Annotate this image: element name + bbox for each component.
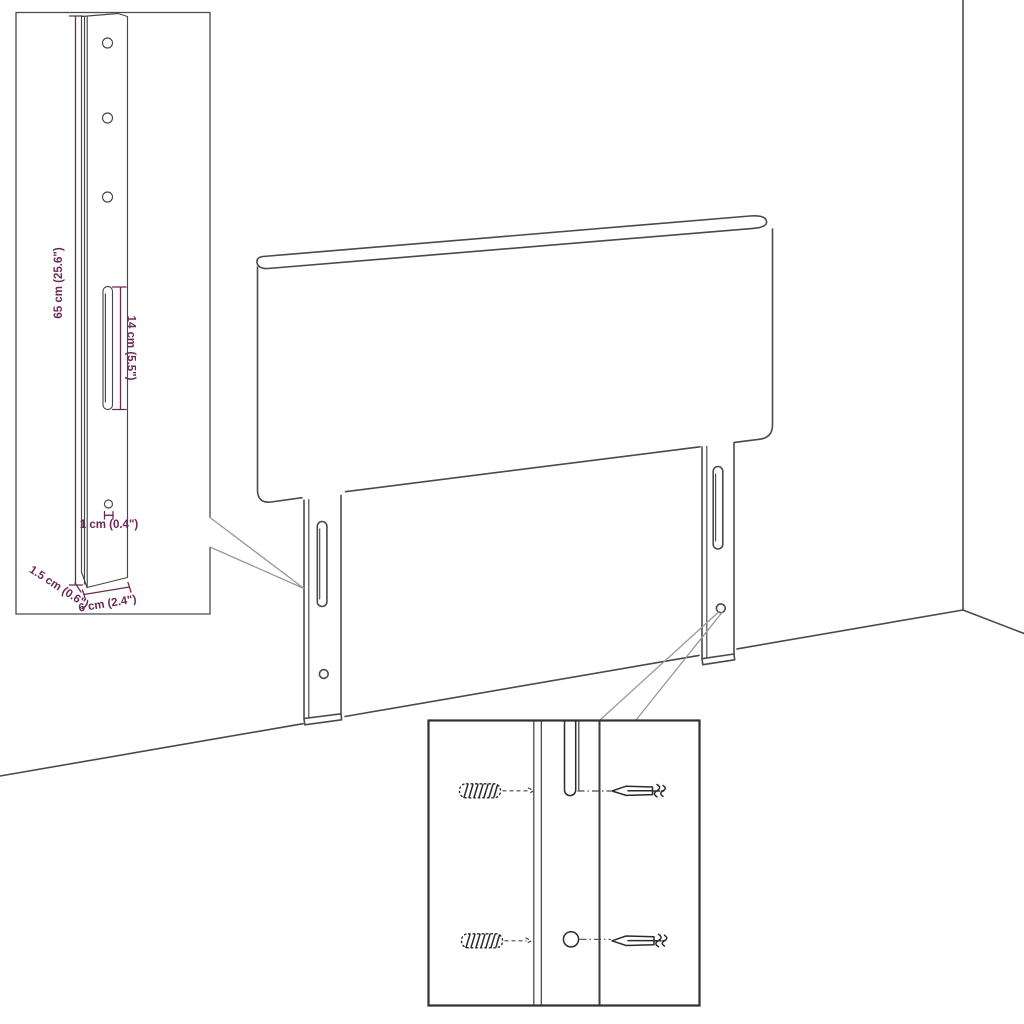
dim-hole-label: 1 cm (0.4"): [80, 519, 139, 531]
assembly-diagram: 65 cm (25.6") 14 cm (5.5") 1 cm (0.4") 6…: [0, 0, 1024, 1024]
dim-slot-label: 14 cm (5.5"): [125, 316, 137, 381]
dim-height-label: 65 cm (25.6"): [53, 247, 65, 318]
diagram-background: [0, 0, 1024, 1024]
